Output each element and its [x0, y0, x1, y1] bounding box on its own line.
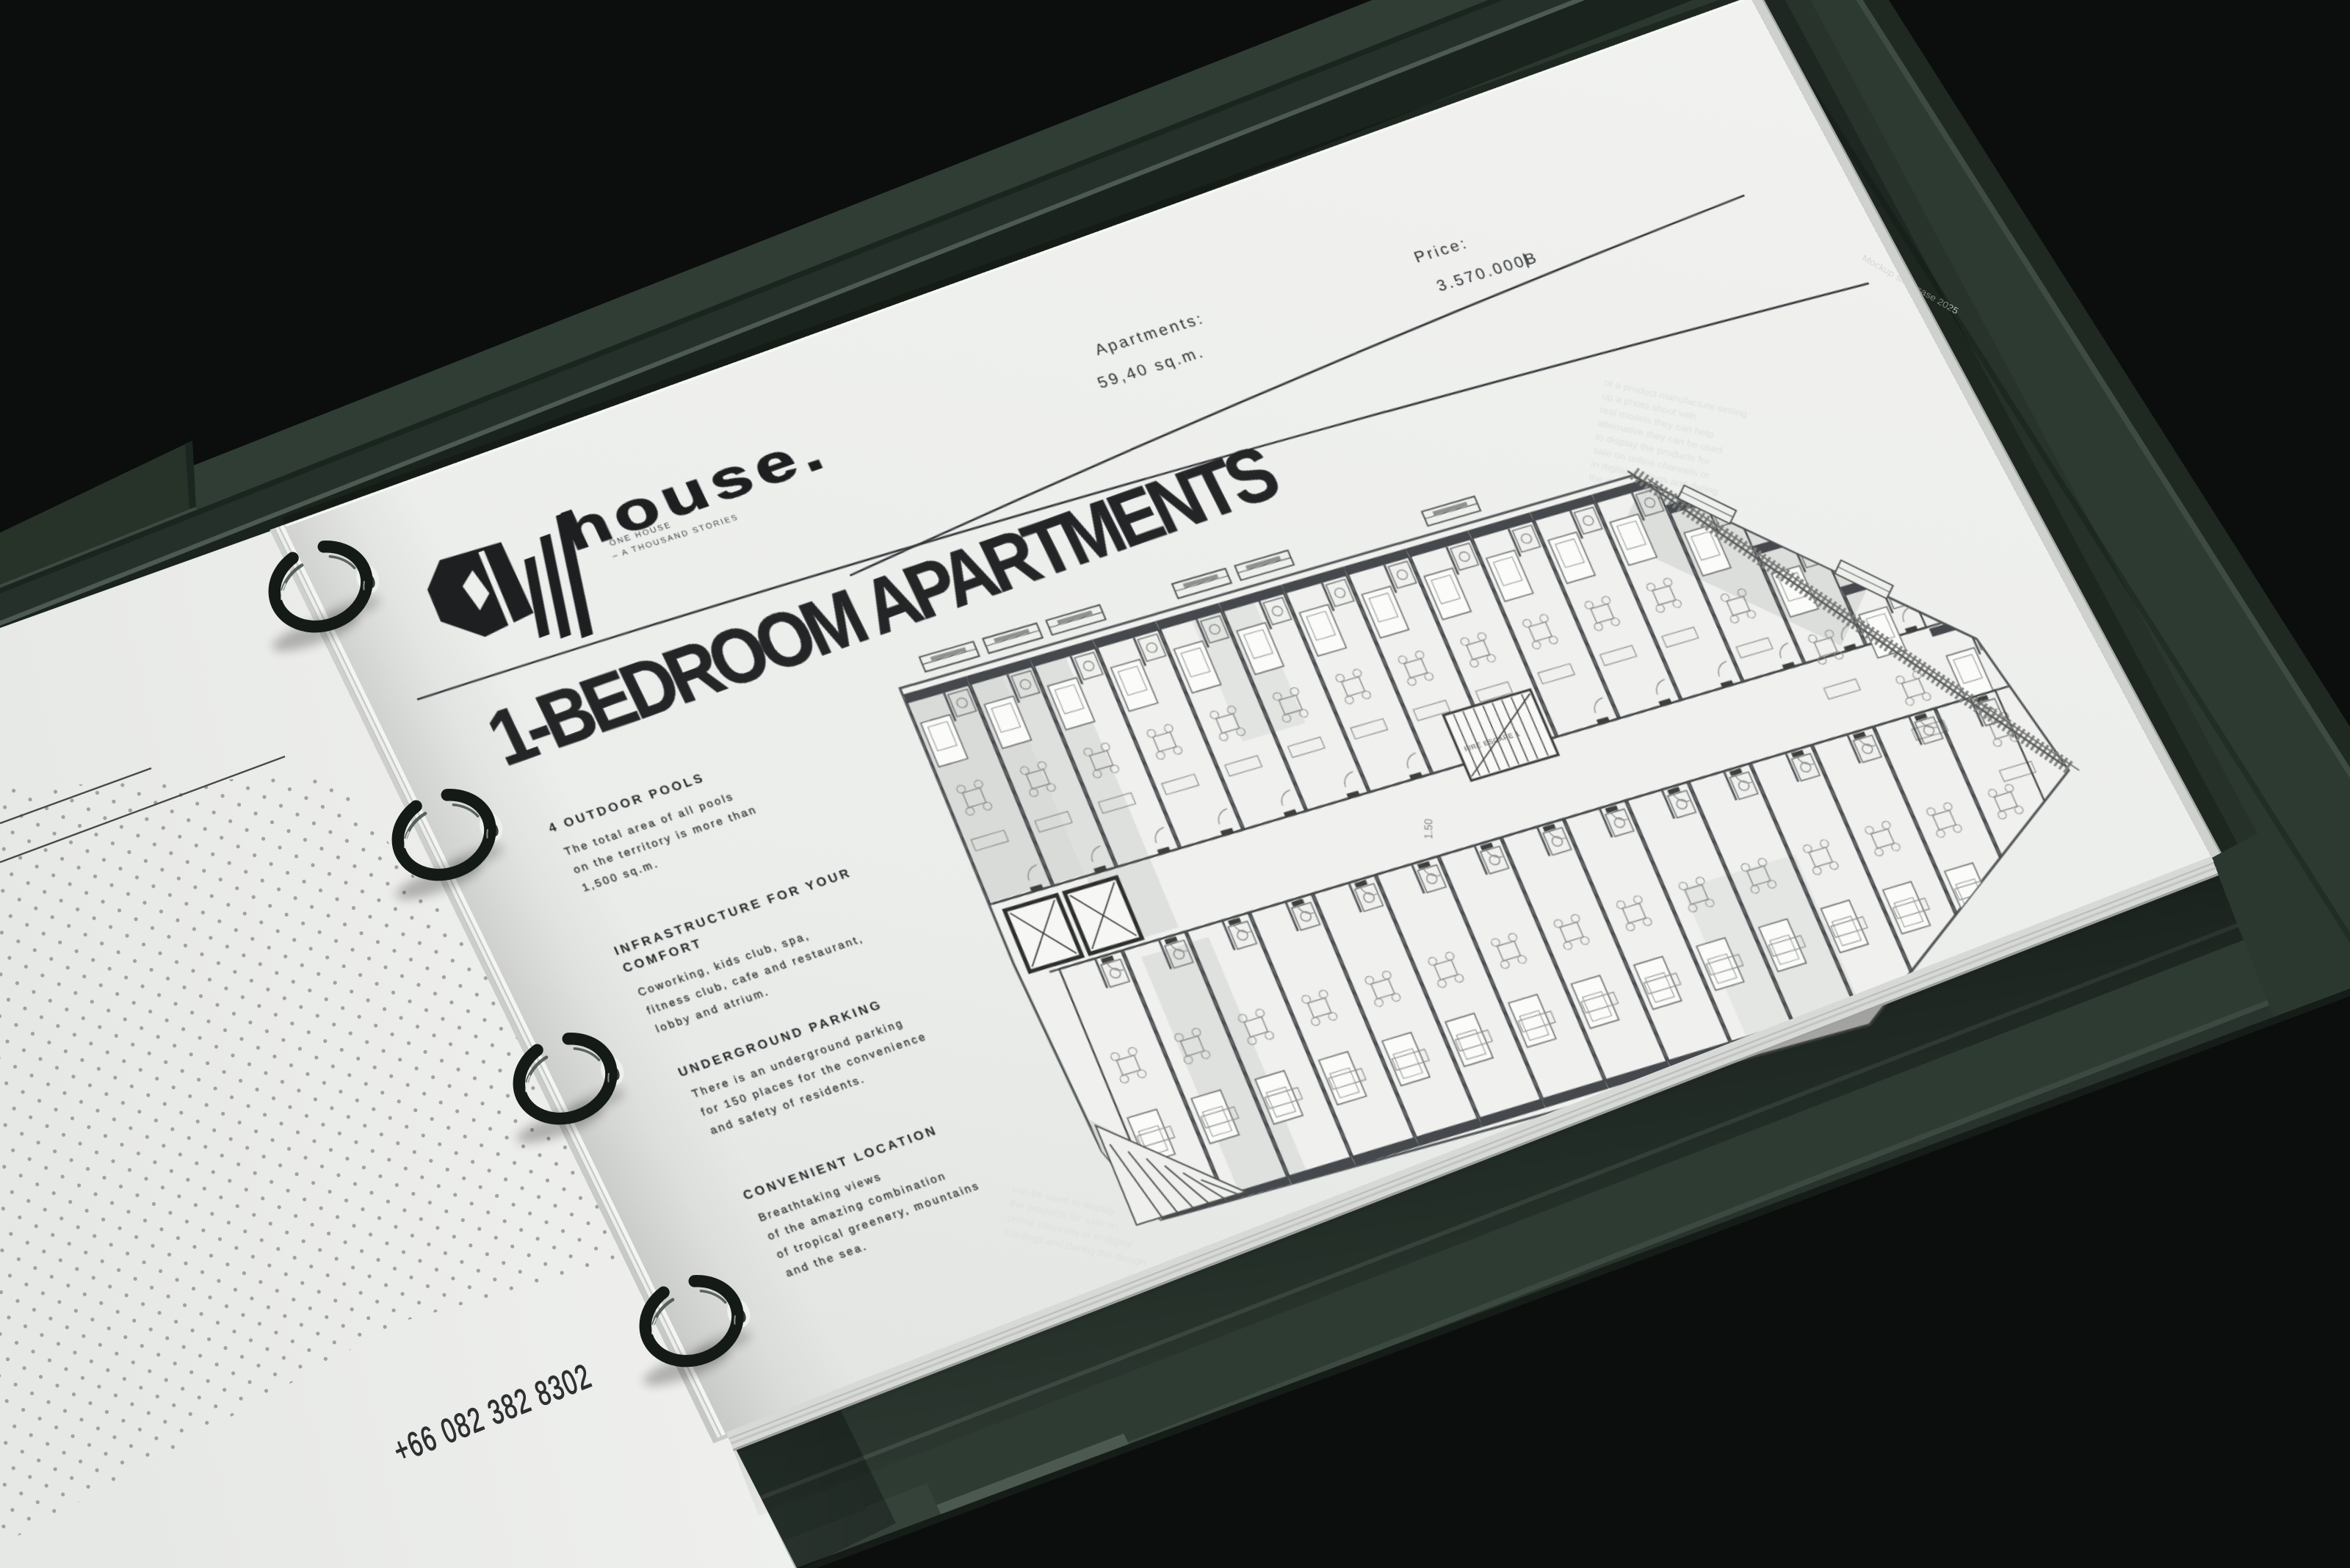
svg-text:1.50: 1.50	[1423, 818, 1436, 839]
